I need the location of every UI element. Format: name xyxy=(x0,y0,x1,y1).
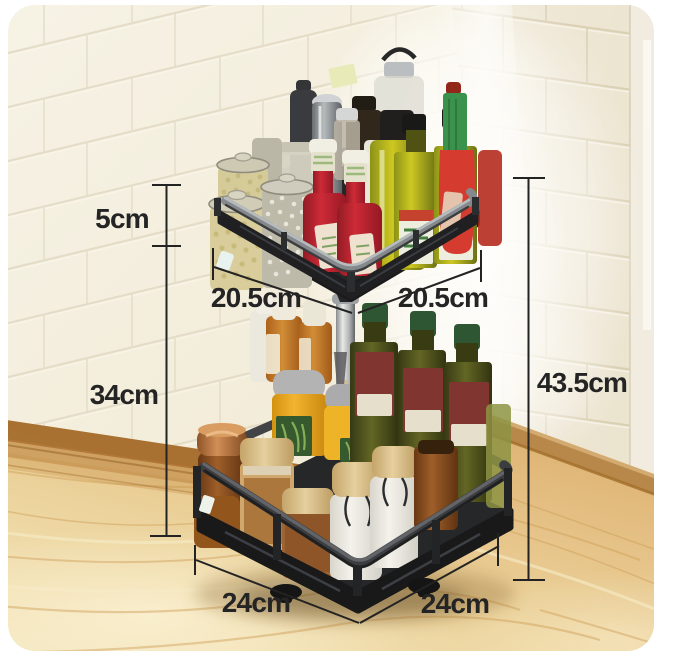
svg-text:43.5cm: 43.5cm xyxy=(537,367,627,398)
svg-text:5cm: 5cm xyxy=(95,203,149,234)
svg-text:24cm: 24cm xyxy=(222,587,290,618)
svg-text:20.5cm: 20.5cm xyxy=(398,282,488,313)
svg-text:24cm: 24cm xyxy=(421,588,489,619)
svg-text:20.5cm: 20.5cm xyxy=(211,282,301,313)
svg-text:34cm: 34cm xyxy=(90,379,158,410)
